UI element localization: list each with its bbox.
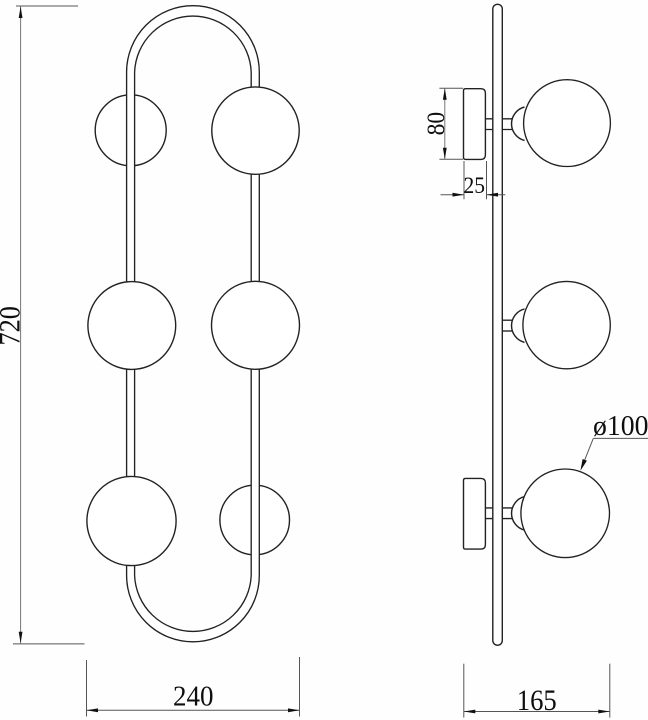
svg-text:80: 80 <box>421 112 450 136</box>
svg-text:165: 165 <box>517 684 557 717</box>
svg-text:720: 720 <box>0 306 27 346</box>
svg-text:240: 240 <box>173 682 214 713</box>
svg-text:25: 25 <box>464 173 486 199</box>
svg-text:ø100: ø100 <box>593 410 648 442</box>
